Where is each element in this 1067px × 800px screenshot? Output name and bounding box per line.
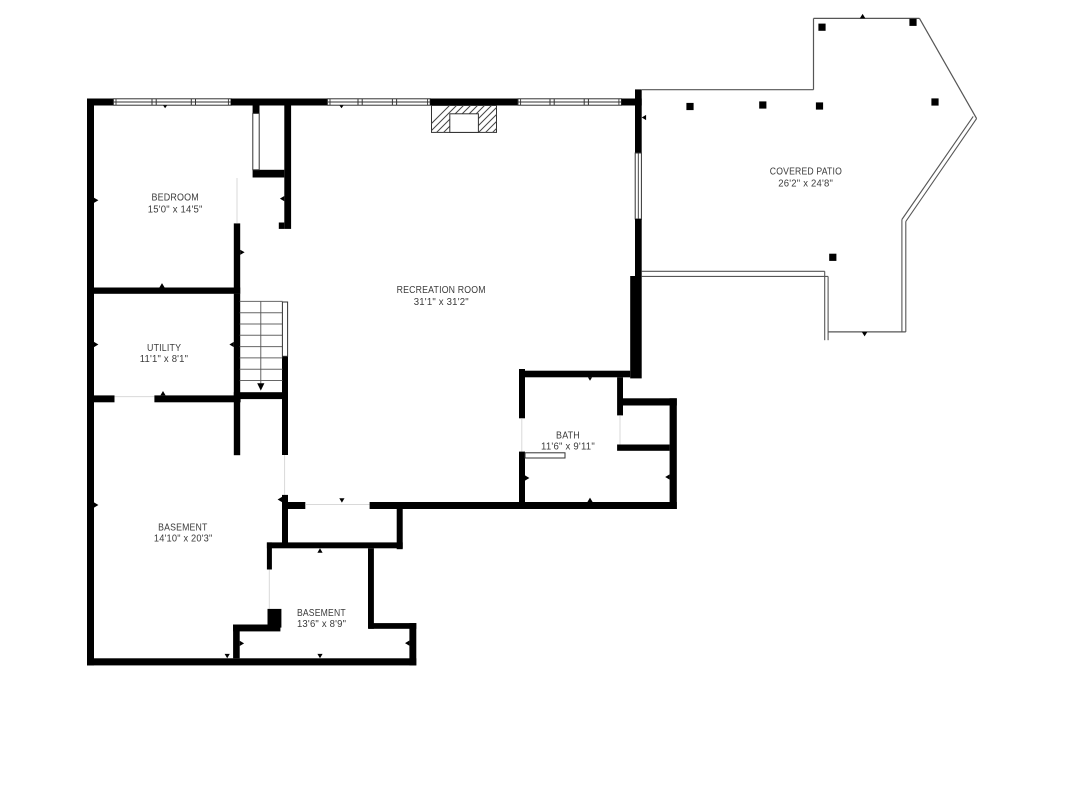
svg-text:11'6" x 9'11": 11'6" x 9'11" [541, 442, 595, 453]
svg-text:26'2" x 24'8": 26'2" x 24'8" [778, 178, 833, 189]
svg-text:31'1" x 31'2": 31'1" x 31'2" [414, 297, 469, 308]
svg-text:UTILITY: UTILITY [147, 343, 181, 354]
svg-text:COVERED PATIO: COVERED PATIO [770, 167, 842, 178]
svg-text:RECREATION ROOM: RECREATION ROOM [397, 285, 486, 296]
svg-text:BEDROOM: BEDROOM [151, 193, 199, 204]
svg-text:BASEMENT: BASEMENT [297, 608, 346, 619]
svg-text:15'0" x 14'5": 15'0" x 14'5" [148, 205, 203, 216]
svg-text:BATH: BATH [556, 431, 580, 442]
svg-text:11'1" x 8'1": 11'1" x 8'1" [140, 354, 189, 365]
svg-text:14'10" x 20'3": 14'10" x 20'3" [154, 534, 213, 545]
svg-text:BASEMENT: BASEMENT [158, 522, 207, 533]
svg-text:13'6" x 8'9": 13'6" x 8'9" [297, 619, 347, 630]
